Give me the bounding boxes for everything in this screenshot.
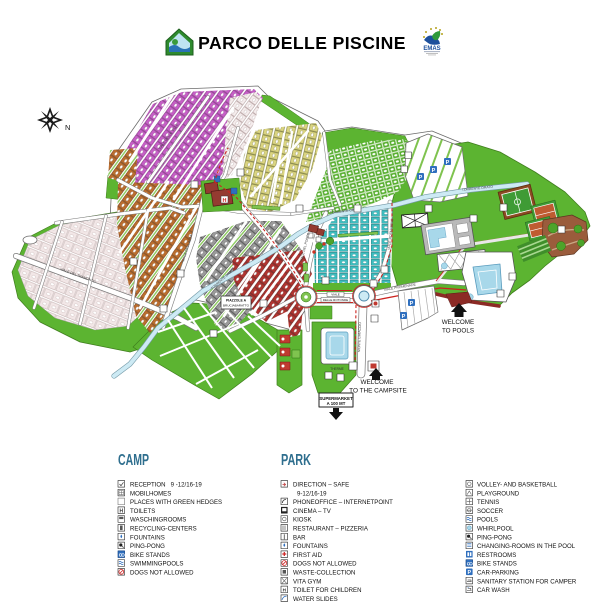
svg-text:PIAZZOLE A: PIAZZOLE A (226, 299, 247, 303)
svg-text:TO THE CAMPSITE: TO THE CAMPSITE (349, 388, 407, 395)
svg-text:CINEMA – TV: CINEMA – TV (293, 508, 332, 515)
svg-text:CHANGING-ROOMS IN THE POOL: CHANGING-ROOMS IN THE POOL (477, 543, 576, 550)
svg-text:PLACES WITH GREEN HEDGES: PLACES WITH GREEN HEDGES (130, 499, 222, 506)
svg-text:H: H (223, 198, 227, 204)
svg-text:EMAS: EMAS (423, 46, 440, 52)
svg-text:CAR WASH: CAR WASH (477, 587, 510, 594)
svg-text:PING-PONG: PING-PONG (477, 534, 512, 541)
svg-text:CAMP: CAMP (118, 452, 149, 469)
svg-text:BRUCIABARATTO: BRUCIABARATTO (223, 304, 250, 308)
svg-text:SOCCER: SOCCER (477, 508, 504, 515)
svg-text:9-12/16-19: 9-12/16-19 (297, 490, 327, 497)
svg-text:DIRECTION – SAFE: DIRECTION – SAFE (293, 482, 349, 489)
svg-text:WELCOME: WELCOME (442, 319, 475, 326)
svg-text:BIKE STANDS: BIKE STANDS (130, 552, 170, 559)
svg-text:WATER SLIDES: WATER SLIDES (293, 596, 338, 603)
svg-text:PING-PONG: PING-PONG (130, 543, 165, 550)
svg-text:BAR: BAR (293, 534, 306, 541)
svg-text:WHIRLPOOL: WHIRLPOOL (477, 526, 514, 533)
svg-text:P: P (446, 160, 450, 166)
svg-text:N: N (65, 123, 70, 132)
svg-text:P: P (467, 570, 471, 576)
svg-text:PHONEOFFICE – INTERNETPOINT: PHONEOFFICE – INTERNETPOINT (293, 499, 393, 506)
svg-text:RESTAURANT – PIZZERIA: RESTAURANT – PIZZERIA (293, 526, 369, 533)
svg-text:BIKE STANDS: BIKE STANDS (477, 561, 517, 568)
svg-text:FOUNTAINS: FOUNTAINS (130, 534, 165, 541)
svg-text:WASTE-COLLECTION: WASTE-COLLECTION (293, 570, 355, 577)
svg-text:P: P (402, 314, 406, 320)
svg-text:P: P (419, 175, 423, 181)
svg-text:KIOSK: KIOSK (293, 517, 312, 524)
svg-text:DELLE ROTONDE: DELLE ROTONDE (323, 298, 348, 302)
svg-text:FOUNTAINS: FOUNTAINS (293, 543, 328, 550)
svg-text:PARK: PARK (281, 452, 312, 469)
svg-text:PARCO DELLE PISCINE: PARCO DELLE PISCINE (198, 33, 406, 53)
svg-text:P: P (432, 168, 436, 174)
svg-text:WELCOME: WELCOME (360, 379, 393, 386)
svg-text:SANITARY STATION FOR CAMPER: SANITARY STATION FOR CAMPER (477, 578, 577, 585)
svg-text:WASCHINGROOMS: WASCHINGROOMS (130, 517, 186, 524)
svg-text:VOLLEY- AND BASKETBALL: VOLLEY- AND BASKETBALL (477, 482, 558, 489)
svg-text:POOLS: POOLS (477, 517, 498, 524)
svg-text:RECYCLING-CENTERS: RECYCLING-CENTERS (130, 526, 197, 533)
svg-text:SWIMMINGPOOLS: SWIMMINGPOOLS (130, 561, 184, 568)
svg-text:H: H (119, 508, 123, 514)
svg-text:TOILET FOR CHILDREN: TOILET FOR CHILDREN (293, 587, 362, 594)
svg-text:CAR-PARKING: CAR-PARKING (477, 570, 519, 577)
svg-text:VITA GYM: VITA GYM (293, 578, 321, 585)
svg-text:TOILETS: TOILETS (130, 508, 155, 515)
svg-text:A 100 MT: A 100 MT (327, 401, 346, 406)
svg-text:TO POOLS: TO POOLS (442, 328, 474, 335)
svg-text:DOGS NOT ALLOWED: DOGS NOT ALLOWED (130, 570, 194, 577)
svg-text:DOGS NOT ALLOWED: DOGS NOT ALLOWED (293, 561, 357, 568)
svg-text:THERME: THERME (330, 367, 343, 371)
svg-text:TENNIS: TENNIS (477, 499, 499, 506)
svg-text:VIALE: VIALE (331, 293, 340, 297)
svg-text:RECEPTION 9 -12/16-19: RECEPTION 9 -12/16-19 (130, 482, 202, 489)
svg-text:FIRST AID: FIRST AID (293, 552, 323, 559)
svg-text:P: P (410, 301, 414, 307)
svg-text:PLAYGROUND: PLAYGROUND (477, 490, 520, 497)
svg-text:MOBILHOMES: MOBILHOMES (130, 490, 171, 497)
svg-text:RESTROOMS: RESTROOMS (477, 552, 516, 559)
